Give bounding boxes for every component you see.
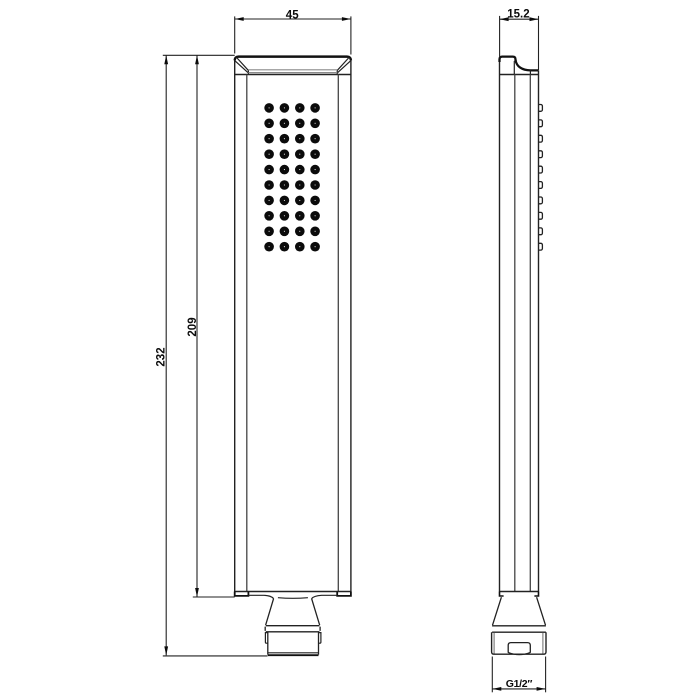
svg-text:G1/2″: G1/2″ <box>506 678 533 690</box>
svg-text:45: 45 <box>286 9 299 21</box>
svg-text:15.2: 15.2 <box>507 9 529 21</box>
svg-text:209: 209 <box>187 317 199 336</box>
svg-text:232: 232 <box>156 347 168 366</box>
